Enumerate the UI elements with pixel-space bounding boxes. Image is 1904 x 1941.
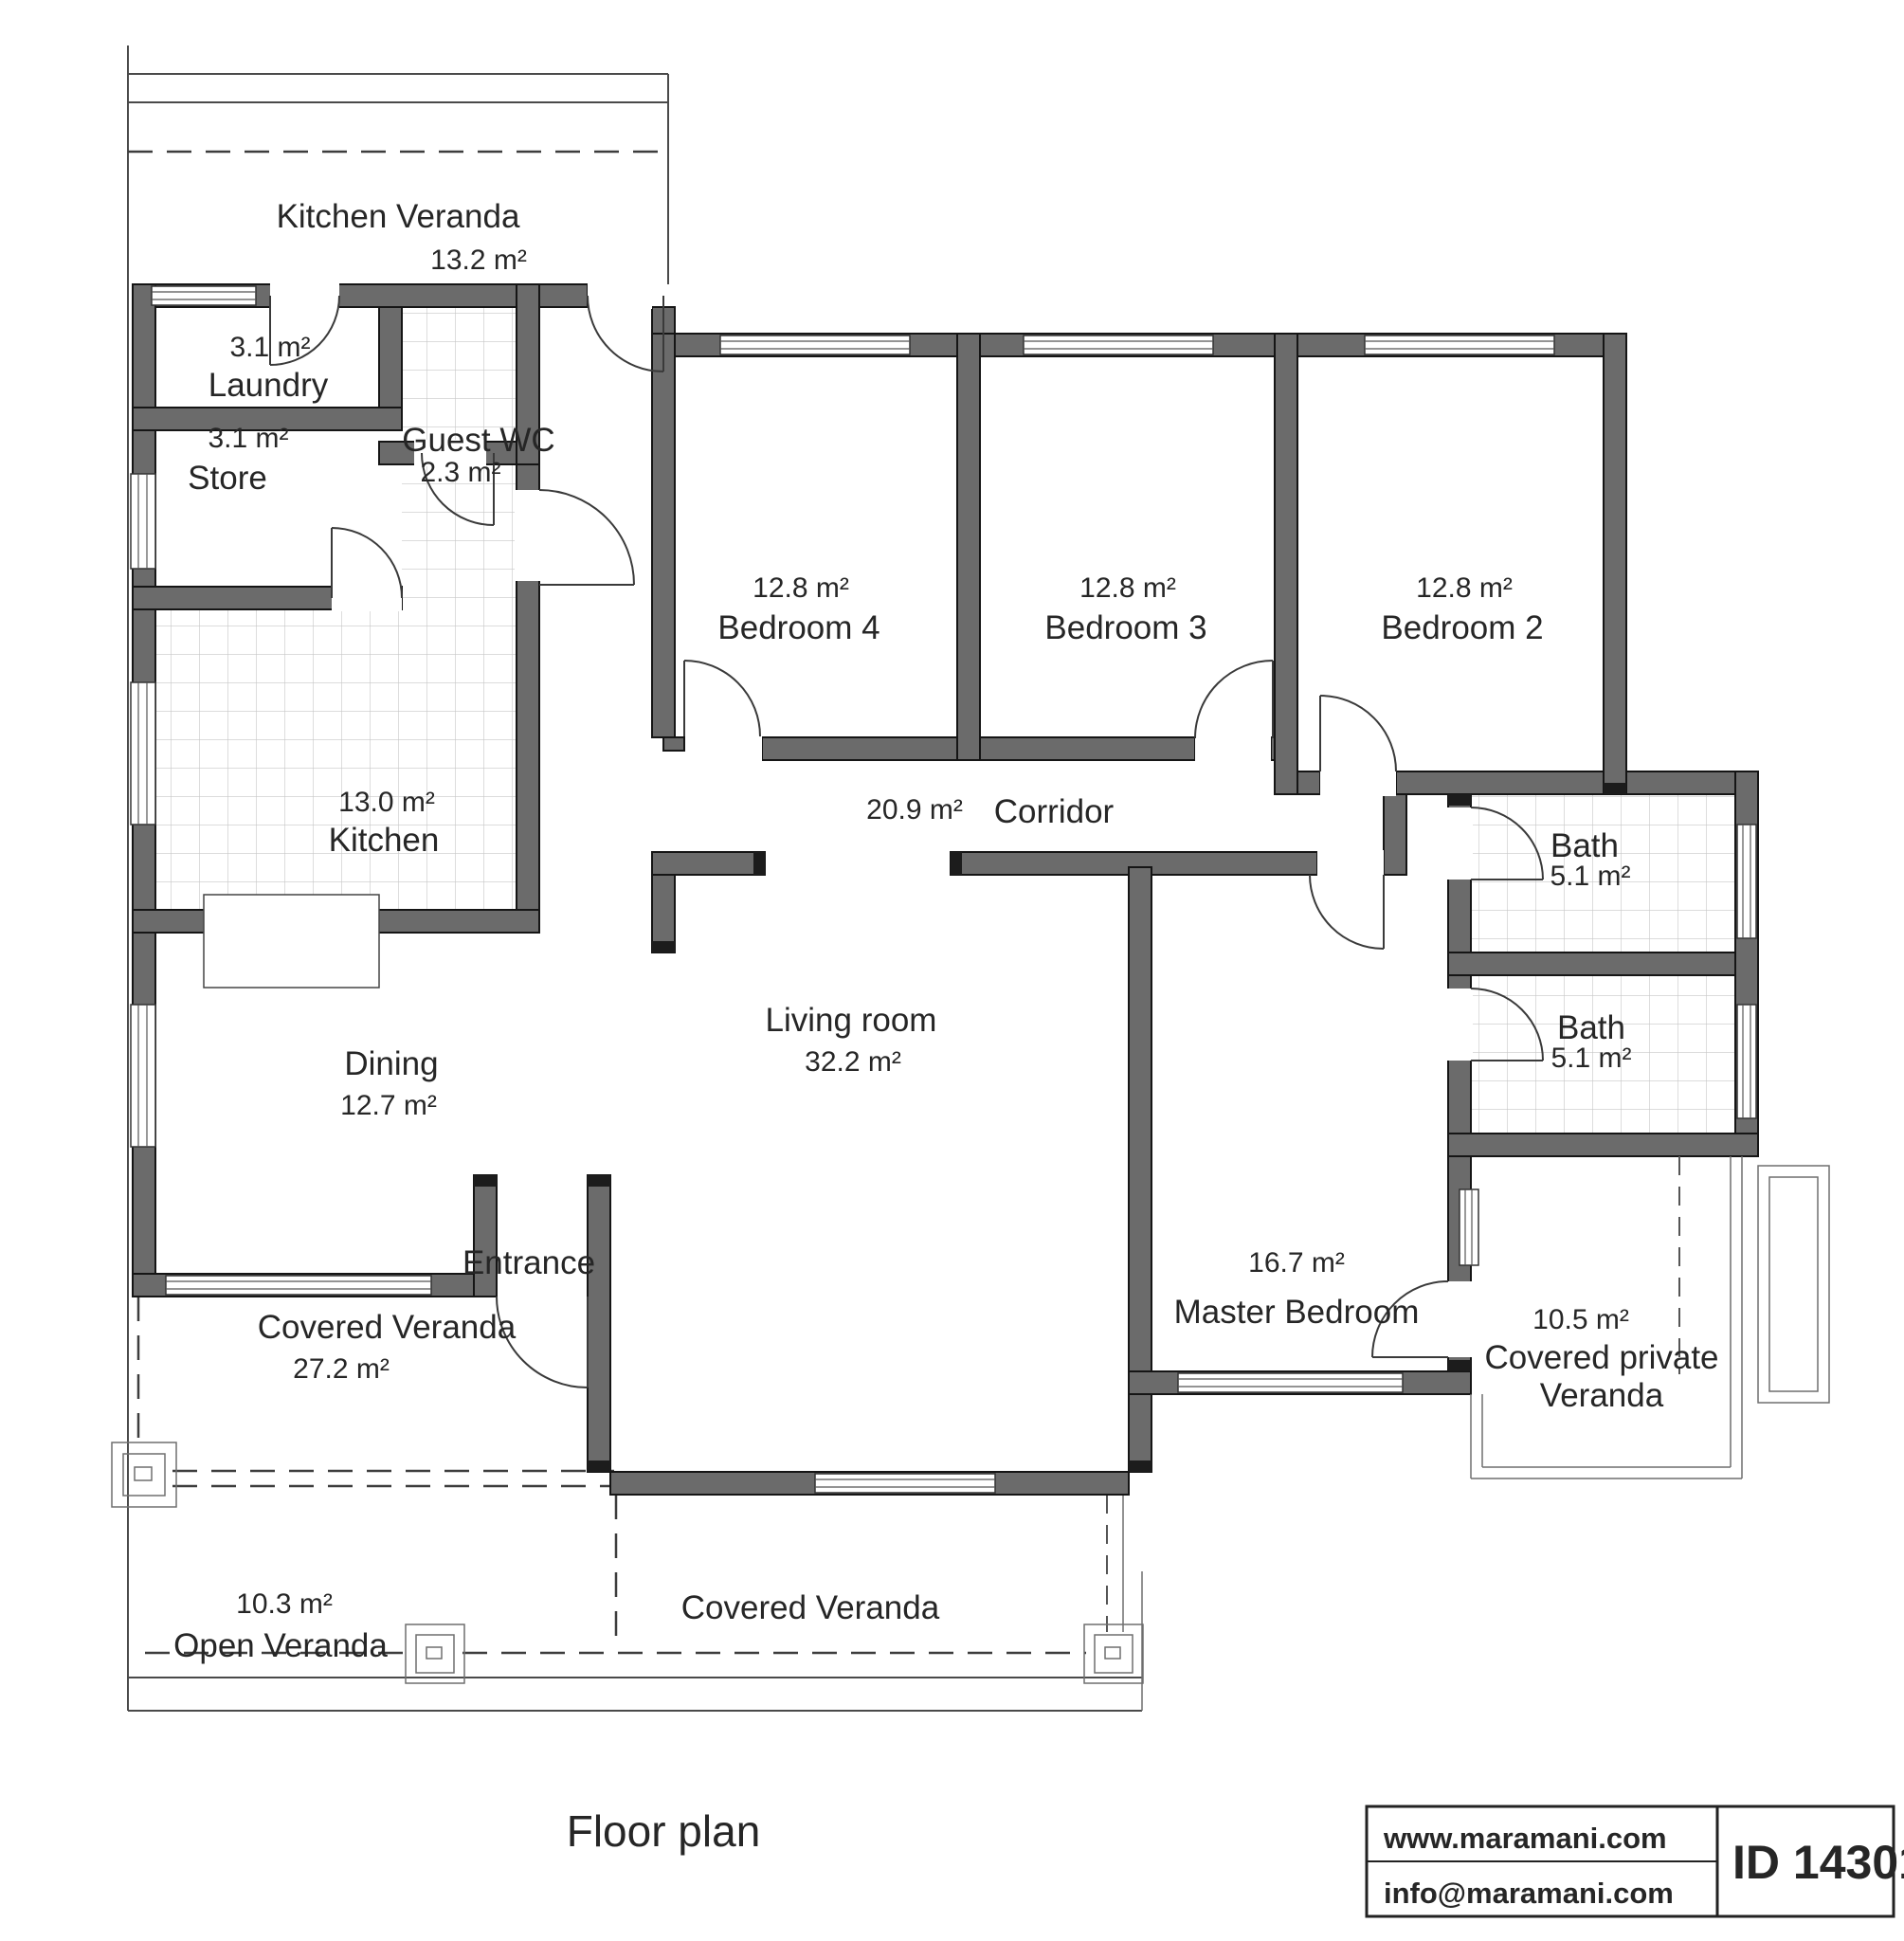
kitchen-counter xyxy=(204,895,379,988)
guest-wc-label: Guest WC xyxy=(402,422,554,459)
bath1-right-window xyxy=(1737,825,1756,938)
living-west-wall-stub xyxy=(652,875,675,952)
bedroom4-bottom-wall xyxy=(762,737,957,760)
footer-plan-id: ID 14301 xyxy=(1732,1836,1904,1889)
dining-front-window xyxy=(166,1276,431,1295)
kitchen-label: Kitchen xyxy=(329,822,440,859)
bedroom2-door xyxy=(1320,696,1396,771)
bedroom2-area: 12.8 m² xyxy=(1416,572,1513,604)
corridor-bath-connector-wall xyxy=(1384,794,1406,875)
covered-veranda-left-label: Covered Veranda xyxy=(258,1309,517,1346)
bath1-area: 5.1 m² xyxy=(1550,861,1630,892)
corridor-area: 20.9 m² xyxy=(866,794,963,825)
living-room-label: Living room xyxy=(766,1002,937,1039)
bedroom3-area: 12.8 m² xyxy=(1079,572,1176,604)
bedroom4-label: Bedroom 4 xyxy=(717,609,879,646)
kitchen-tile-floor xyxy=(155,609,517,910)
private-veranda-label-line1: Covered private xyxy=(1484,1339,1718,1376)
laundry-label: Laundry xyxy=(209,367,329,404)
private-veranda-outline xyxy=(1471,1156,1829,1478)
bedroom4-bedroom3-divider xyxy=(957,334,980,760)
post-middle xyxy=(406,1624,464,1683)
post-right xyxy=(1084,1624,1143,1683)
kitchen-veranda-area: 13.2 m² xyxy=(430,245,527,276)
guest-wc-area: 2.3 m² xyxy=(420,457,500,488)
private-veranda-area: 10.5 m² xyxy=(1532,1304,1629,1335)
kitchen-area: 13.0 m² xyxy=(338,787,435,818)
laundry-area: 3.1 m² xyxy=(229,332,310,363)
floor-plan-drawing: Kitchen Veranda 13.2 m² 3.1 m² Laundry 3… xyxy=(0,0,1904,1941)
entrance-label: Entrance xyxy=(462,1244,595,1281)
living-room-area: 32.2 m² xyxy=(805,1046,901,1078)
store-left-window xyxy=(131,474,155,569)
bedroom3-bottom-wall xyxy=(980,737,1195,760)
post-left xyxy=(112,1442,176,1507)
bedroom3-bedroom2-divider xyxy=(1275,334,1297,794)
footer-website[interactable]: www.maramani.com xyxy=(1383,1822,1667,1855)
page-title: Floor plan xyxy=(567,1806,761,1856)
bath2-label: Bath xyxy=(1557,1009,1625,1046)
bedroom2-bottom-bath-top-wall xyxy=(1396,771,1758,794)
store-area: 3.1 m² xyxy=(208,423,288,454)
bedroom4-wall-foot xyxy=(663,737,684,751)
bath1-label: Bath xyxy=(1550,827,1619,864)
bath-bottom-wall xyxy=(1448,1134,1758,1156)
kitchen-door xyxy=(539,490,634,585)
bedroom3-label: Bedroom 3 xyxy=(1044,609,1206,646)
open-veranda-area: 10.3 m² xyxy=(236,1588,333,1620)
bedroom2-wall-stub xyxy=(1297,771,1320,794)
living-front-window xyxy=(815,1474,995,1493)
bedroom4-area: 12.8 m² xyxy=(753,572,849,604)
bedroom2-label: Bedroom 2 xyxy=(1381,609,1543,646)
corridor-south-wall-left xyxy=(652,852,765,875)
footer-email[interactable]: info@maramani.com xyxy=(1384,1877,1674,1910)
bedroom3-door xyxy=(1195,661,1273,738)
covered-veranda-left-area: 27.2 m² xyxy=(293,1353,390,1385)
corridor-label: Corridor xyxy=(994,793,1115,830)
private-veranda-label-line2: Veranda xyxy=(1540,1377,1664,1414)
kitchen-veranda-label: Kitchen Veranda xyxy=(277,198,520,235)
bedroom3-top-window xyxy=(1024,336,1213,354)
bath-divider-wall xyxy=(1448,952,1735,975)
bedroom4-door xyxy=(684,661,760,736)
bedroom2-right-wall xyxy=(1604,334,1626,794)
dining-area: 12.7 m² xyxy=(340,1090,437,1121)
bath2-area: 5.1 m² xyxy=(1550,1043,1631,1074)
entrance-right-wall xyxy=(588,1175,610,1472)
dining-label: Dining xyxy=(344,1045,438,1082)
store-label: Store xyxy=(188,460,267,497)
master-front-window xyxy=(1178,1373,1403,1392)
master-bedroom-area: 16.7 m² xyxy=(1248,1247,1345,1279)
master-veranda-window xyxy=(1460,1189,1478,1265)
bedroom4-top-window xyxy=(720,336,910,354)
floor-plan-page: Kitchen Veranda 13.2 m² 3.1 m² Laundry 3… xyxy=(0,0,1904,1941)
bedroom2-top-window xyxy=(1365,336,1554,354)
dining-left-window xyxy=(131,1005,155,1147)
master-bedroom-door xyxy=(1310,875,1384,949)
laundry-wc-divider-wall xyxy=(379,307,402,408)
bedroom4-left-wall xyxy=(652,334,675,737)
title-block: www.maramani.com info@maramani.com ID 14… xyxy=(1367,1806,1904,1916)
open-veranda-label: Open Veranda xyxy=(173,1627,388,1664)
master-bedroom-label: Master Bedroom xyxy=(1174,1294,1420,1331)
bath2-right-window xyxy=(1737,1005,1756,1118)
covered-veranda-bottom-label: Covered Veranda xyxy=(681,1589,940,1626)
laundry-top-window xyxy=(152,286,256,305)
kitchen-left-window xyxy=(131,682,155,825)
